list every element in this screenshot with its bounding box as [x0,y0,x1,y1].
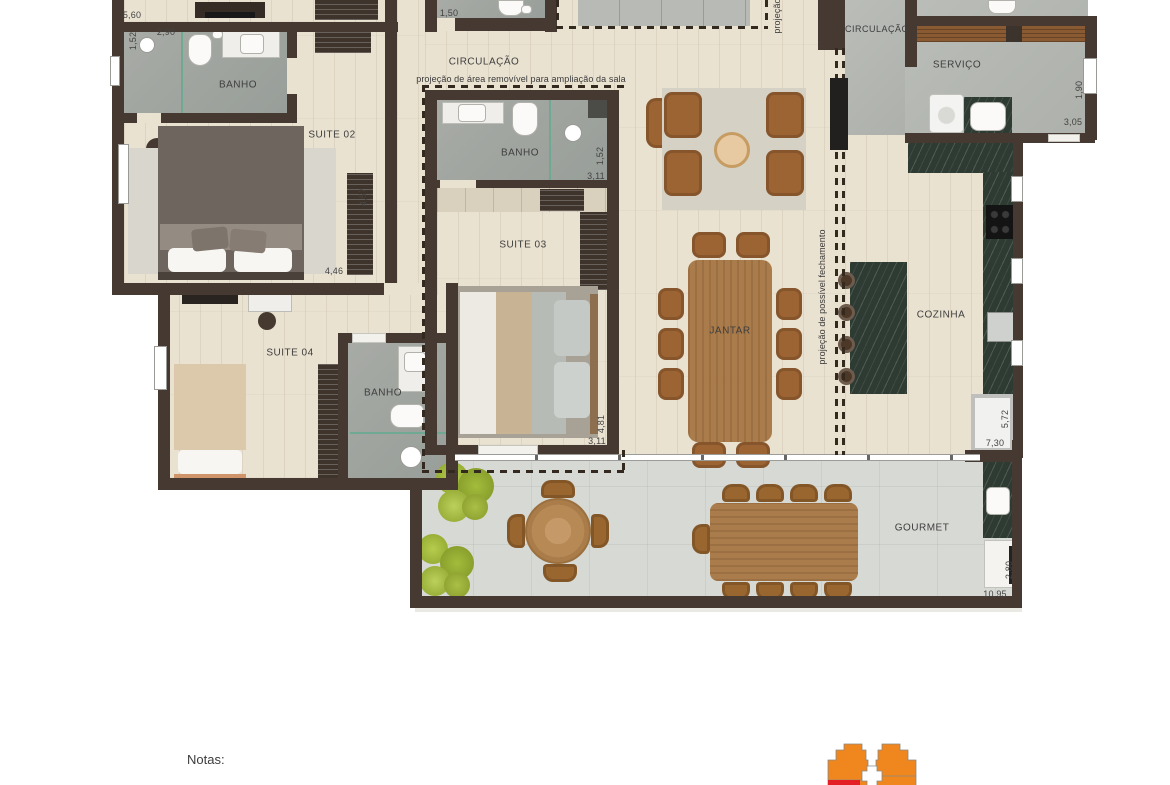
dim-label: 1,52 [595,147,605,165]
projection-dashed-line [422,85,425,473]
wall [425,90,619,100]
projection-dashed-line [422,85,625,88]
wall [112,283,384,295]
room-label-suite04: SUITE 04 [266,348,313,359]
dim-label: 3,05 [1064,117,1082,127]
tv-panel [830,78,848,150]
bed-headboard [590,294,598,434]
dim-label: 3,11 [588,436,606,446]
window [1011,258,1023,284]
bed-suite04 [174,364,246,450]
sink [458,104,486,122]
door-opening [1048,134,1080,142]
wall [410,478,422,608]
dim-label: 1,52 [128,32,138,50]
dim-label: 4,81 [596,415,606,433]
washer [929,94,964,133]
pillow [554,362,590,418]
window [1011,176,1023,202]
kitchen-sink [987,312,1014,342]
dining-chair [658,288,684,320]
plant [462,494,488,520]
dining-chair [658,368,684,400]
dim-label: 2,90 [157,27,175,37]
shower-glass [181,32,183,113]
shower-head [564,124,582,142]
tv [205,12,255,18]
dining-chair [658,328,684,360]
shower-head [400,446,422,468]
stool [838,336,855,353]
bed-blanket [496,292,532,434]
shower-head [139,37,155,53]
room-label-banho-suite03: BANHO [501,148,539,159]
annotation-projection-partial: projeção [772,0,782,34]
dining-chair [736,232,770,258]
bed-headboard [158,272,304,280]
room-label-cozinha: COZINHA [917,310,966,321]
window [118,144,129,204]
toilet [390,404,424,428]
pillow [178,450,242,474]
room-label-gourmet: GOURMET [895,523,950,534]
shelf [917,26,1006,42]
shelf [1022,26,1086,42]
shower-glass [549,100,551,180]
armchair [664,150,702,196]
projection-dashed-line [765,0,768,28]
gourmet-sink [986,487,1010,515]
floor-corridor [397,0,425,285]
stool [258,312,276,330]
wall [607,90,619,455]
closet-suite03 [580,212,607,290]
dim-label: 5,60 [123,10,141,20]
terrace-chair [591,514,609,548]
dim-label: 3,11 [587,171,605,181]
room-label-banho-suite02: BANHO [219,80,257,91]
terrace-chair [692,524,710,554]
room-label-suite03: SUITE 03 [499,240,546,251]
projection-dashed-line [422,470,625,473]
kitchen-counter [908,143,1015,173]
room-label-servico: SERVIÇO [933,60,981,71]
wall [385,0,397,295]
armchair [766,92,804,138]
door-opening [287,58,297,94]
terrace-chair [756,484,784,502]
dim-label: 2,80 [1004,561,1014,579]
wall [338,335,348,478]
wall [1012,440,1022,606]
cushion [191,226,229,252]
keyplan-icon [826,742,918,785]
wall [905,16,1088,26]
dim-label: 5,72 [1000,410,1010,428]
dining-table [688,260,772,442]
shelf-divider [1006,24,1022,42]
sliding-glass-doors [455,454,980,461]
window [154,346,167,390]
annotation-removable-area: projeção de área removível para ampliaçã… [416,74,626,84]
dining-chair [776,288,802,320]
sofa [578,0,750,26]
room-label-jantar: JANTAR [709,326,750,337]
dim-label: 1,90 [1074,81,1084,99]
stool [838,368,855,385]
cooktop [986,205,1014,239]
wall [425,90,437,455]
wall [410,596,1022,608]
terrace-chair [507,514,525,548]
dim-label: 4,46 [325,266,343,276]
wall [112,22,398,32]
floor-plan-page: BANHO SUITE 02 CIRCULAÇÃO BANHO SUITE 03… [0,0,1170,785]
niche [521,5,532,14]
keyplan-logo [826,742,918,785]
window [1083,58,1097,94]
laundry-sink [970,102,1006,131]
gourmet-table [710,503,858,581]
armchair [664,92,702,138]
bed-suite03 [460,292,496,434]
dining-chair [776,328,802,360]
armchair [766,150,804,196]
sink [240,34,264,54]
plant [444,572,470,598]
door-opening [440,180,476,188]
notes-label: Notas: [187,752,225,767]
dim-label: 10,95 [983,589,1007,599]
stool [838,272,855,289]
door-opening [384,283,425,295]
stool [838,304,855,321]
sink [988,0,1016,14]
cushion [229,228,267,253]
coffee-table [714,132,750,168]
room-label-banho-suite04: BANHO [364,388,402,399]
room-label-circulacao-right: CIRCULAÇÃO [845,24,909,34]
door-opening [352,333,386,343]
dining-chair [692,232,726,258]
dim-label: 4,57 [358,188,368,206]
wardrobe [315,0,378,20]
dining-chair [776,368,802,400]
toilet [512,102,538,136]
pillow [168,248,226,272]
room-label-circulacao: CIRCULAÇÃO [449,57,520,68]
room-label-suite02: SUITE 02 [308,130,355,141]
niche [588,100,607,118]
dim-label: 7,30 [986,438,1004,448]
toilet [188,34,212,66]
terrace-chair [543,564,577,582]
window [1011,340,1023,366]
projection-dashed-line [622,450,625,473]
floor-circulacao-right [845,0,905,135]
dim-label: 1,50 [440,8,458,18]
round-table [525,498,591,564]
wall [818,0,845,50]
window [110,56,120,86]
pillow [554,300,590,356]
terrace-chair [824,484,852,502]
door-opening [137,113,161,123]
terrace-chair [541,480,575,498]
tv [182,294,238,304]
wall [905,133,1020,143]
projection-dashed-line [556,0,559,28]
kitchen-island [850,262,907,394]
door-opening [437,18,455,31]
closet-hangers [540,189,584,211]
projection-dashed-line [556,26,768,29]
wall [158,295,170,490]
terrace-chair [722,484,750,502]
annotation-possible-closure: projeção de possível fechamento [817,229,827,364]
terrace-chair [790,484,818,502]
